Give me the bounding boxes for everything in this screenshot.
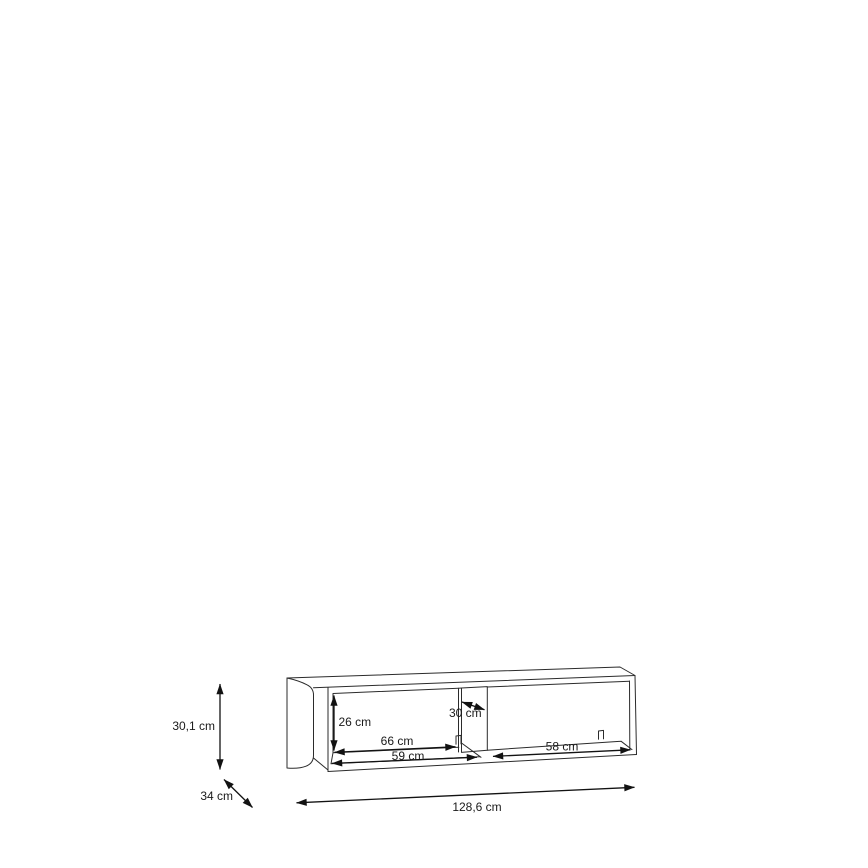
right-end-panel (630, 676, 637, 755)
left-end-panel (287, 678, 314, 768)
left-side-strip (314, 688, 329, 772)
middle-divider (459, 687, 488, 758)
dimension-labels: 30,1 cm 34 cm 128,6 cm 26 cm 66 cm 59 cm… (172, 706, 578, 814)
bottom-front-edge (328, 755, 637, 772)
diagram-canvas: 30,1 cm 34 cm 128,6 cm 26 cm 66 cm 59 cm… (0, 0, 868, 868)
top-face (287, 667, 635, 688)
left-front-width-dimension-label: 59 cm (392, 749, 425, 763)
right-width-dimension-label: 58 cm (546, 740, 579, 754)
width-dimension-label: 128,6 cm (452, 800, 501, 814)
height-dimension-label: 30,1 cm (172, 719, 215, 733)
furniture-dimension-diagram: 30,1 cm 34 cm 128,6 cm 26 cm 66 cm 59 cm… (0, 0, 868, 868)
compartment-height-dimension-label: 26 cm (339, 715, 372, 729)
right-mount-bracket (599, 730, 604, 739)
divider-depth-dimension-label: 30 cm (449, 706, 482, 720)
depth-dimension-label: 34 cm (200, 789, 233, 803)
left-back-width-dimension-label: 66 cm (381, 734, 414, 748)
